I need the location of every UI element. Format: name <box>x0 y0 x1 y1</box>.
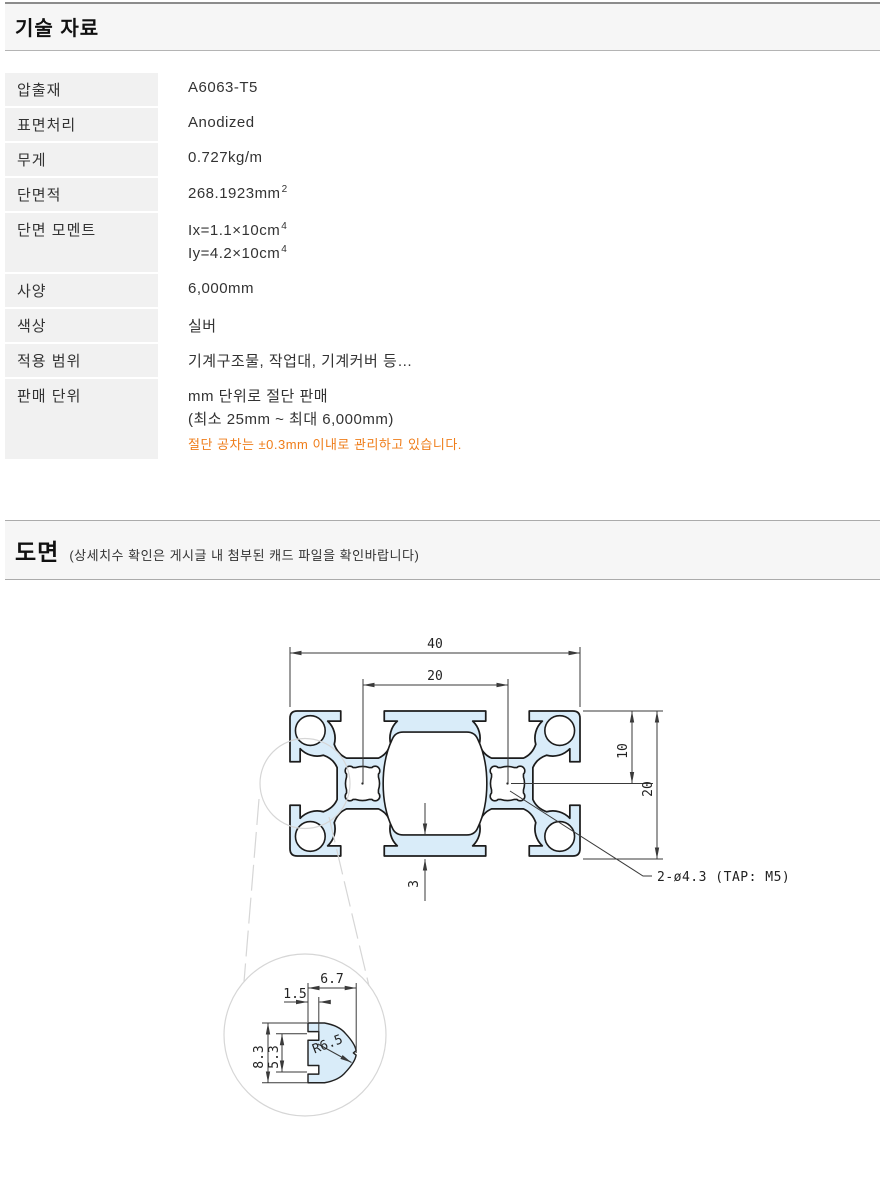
spec-label-application: 적용 범위 <box>5 344 158 377</box>
spec-value-moment: Ix=1.1×10cm4 Iy=4.2×10cm4 <box>158 213 287 272</box>
spec-value-color: 실버 <box>158 309 217 342</box>
detail-dim-inner-text: 5.3 <box>267 1045 282 1068</box>
detail-dim-lip-text: 1.5 <box>283 987 306 1002</box>
corner-hole-bottom-right <box>545 822 575 852</box>
moment-ix-sup: 4 <box>281 221 287 232</box>
sales-line1: mm 단위로 절단 판매 <box>188 385 462 408</box>
spec-value-surface: Anodized <box>158 108 255 141</box>
tap-note-text: 2-ø4.3 (TAP: M5) <box>657 870 790 885</box>
spec-row-weight: 무게 0.727kg/m <box>5 143 880 176</box>
moment-iy-sup: 4 <box>281 244 287 255</box>
spec-value-spec: 6,000mm <box>158 274 254 307</box>
tech-section-header: 기술 자료 <box>5 2 880 51</box>
dim-wall-text: 3 <box>407 880 422 888</box>
spec-label-spec: 사양 <box>5 274 158 307</box>
moment-ix-value: Ix=1.1×10cm <box>188 222 280 239</box>
spec-row-extrusion: 압출재 A6063-T5 <box>5 73 880 106</box>
spec-row-area: 단면적 268.1923mm2 <box>5 178 880 211</box>
spec-label-area: 단면적 <box>5 178 158 211</box>
spec-table: 압출재 A6063-T5 표면처리 Anodized 무게 0.727kg/m … <box>5 73 880 459</box>
detail-dim-outer-text: 8.3 <box>252 1045 267 1068</box>
spec-label-color: 색상 <box>5 309 158 342</box>
moment-ix: Ix=1.1×10cm4 <box>188 219 287 242</box>
drawing-section-header: 도면 (상세치수 확인은 게시글 내 첨부된 캐드 파일을 확인바랍니다) <box>5 520 880 580</box>
dim-pitch-text: 20 <box>427 669 443 684</box>
page: 기술 자료 압출재 A6063-T5 표면처리 Anodized 무게 0.72… <box>0 2 884 1175</box>
spec-row-spec: 사양 6,000mm <box>5 274 880 307</box>
spec-row-application: 적용 범위 기계구조물, 작업대, 기계커버 등… <box>5 344 880 377</box>
sales-tolerance-note: 절단 공차는 ±0.3mm 이내로 관리하고 있습니다. <box>188 434 462 453</box>
spec-row-color: 색상 실버 <box>5 309 880 342</box>
moment-iy-value: Iy=4.2×10cm <box>188 245 280 262</box>
spec-value-weight: 0.727kg/m <box>158 143 263 176</box>
tech-section-title: 기술 자료 <box>15 12 870 41</box>
area-sup: 2 <box>282 184 288 195</box>
detail-dim-depth-text: 6.7 <box>320 972 343 987</box>
sales-line2: (최소 25mm ~ 최대 6,000mm) <box>188 408 462 431</box>
spec-row-surface: 표면처리 Anodized <box>5 108 880 141</box>
dim-half-height-text: 10 <box>616 743 631 759</box>
central-cavity <box>383 732 487 835</box>
detail-cone-line-left <box>244 799 259 982</box>
spec-row-sales: 판매 단위 mm 단위로 절단 판매 (최소 25mm ~ 최대 6,000mm… <box>5 379 880 460</box>
spec-label-surface: 표면처리 <box>5 108 158 141</box>
spec-value-sales: mm 단위로 절단 판매 (최소 25mm ~ 최대 6,000mm) 절단 공… <box>158 379 462 460</box>
spec-value-application: 기계구조물, 작업대, 기계커버 등… <box>158 344 413 377</box>
profile-drawing: 40 20 10 20 3 2-ø4.3 (TAP: M5) <box>205 610 880 1175</box>
area-value: 268.1923mm <box>188 185 281 202</box>
dim-width-text: 40 <box>427 637 443 652</box>
drawing-section-title: 도면 <box>15 533 59 567</box>
spec-label-moment: 단면 모멘트 <box>5 213 158 272</box>
detail-cone-line-right <box>329 817 369 986</box>
spec-row-moment: 단면 모멘트 Ix=1.1×10cm4 Iy=4.2×10cm4 <box>5 213 880 272</box>
profile-drawing-svg: 40 20 10 20 3 2-ø4.3 (TAP: M5) <box>205 610 865 1170</box>
corner-hole-top-right <box>545 716 575 746</box>
detail-view-circle <box>224 954 386 1116</box>
spec-label-extrusion: 압출재 <box>5 73 158 106</box>
moment-iy: Iy=4.2×10cm4 <box>188 242 287 265</box>
spec-value-extrusion: A6063-T5 <box>158 73 258 106</box>
spec-label-sales: 판매 단위 <box>5 379 158 460</box>
dim-height-text: 20 <box>641 781 656 797</box>
spec-value-area: 268.1923mm2 <box>158 178 288 211</box>
drawing-section-note: (상세치수 확인은 게시글 내 첨부된 캐드 파일을 확인바랍니다) <box>69 545 419 564</box>
spec-label-weight: 무게 <box>5 143 158 176</box>
